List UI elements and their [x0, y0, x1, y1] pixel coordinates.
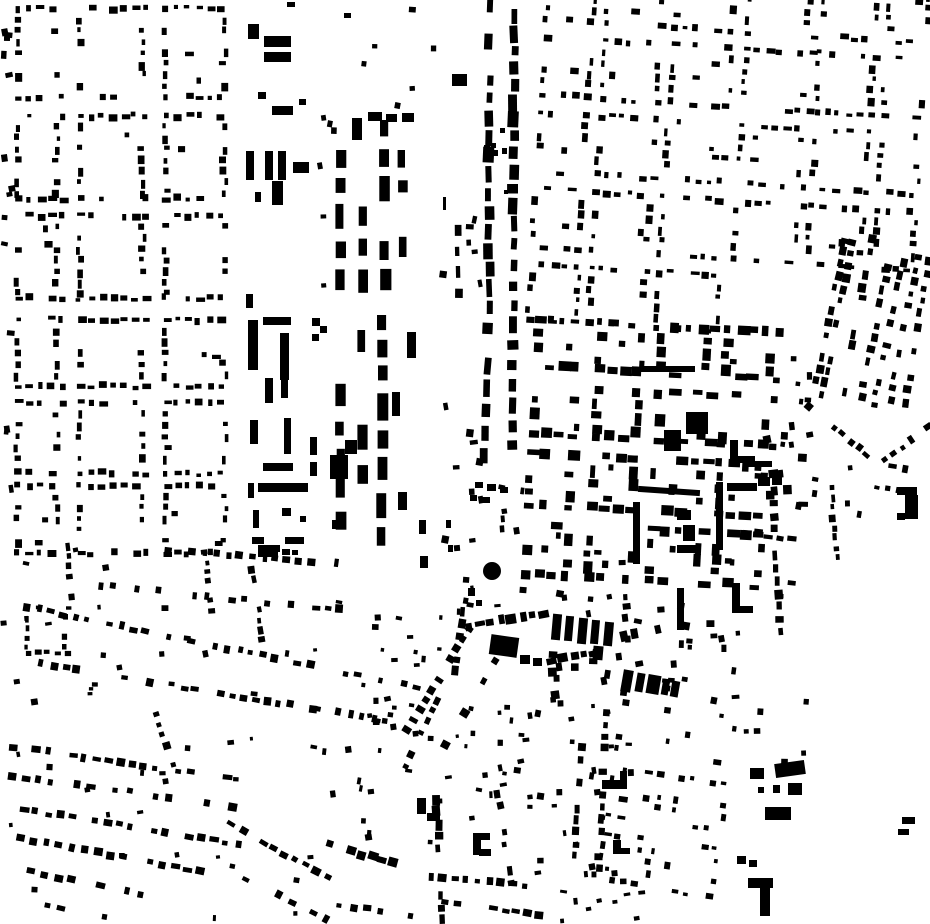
building — [715, 458, 722, 466]
building — [73, 780, 81, 789]
building — [619, 630, 629, 642]
south-center-dots — [455, 705, 532, 821]
building — [143, 234, 147, 242]
building — [710, 567, 719, 574]
east-fan-base — [881, 422, 930, 463]
building — [739, 123, 744, 127]
building — [667, 269, 674, 273]
building — [812, 376, 819, 384]
building — [15, 27, 21, 33]
building — [898, 829, 909, 835]
building — [185, 745, 191, 751]
building — [16, 752, 20, 758]
building — [696, 180, 702, 185]
building — [713, 759, 722, 766]
building — [361, 818, 366, 823]
building — [715, 198, 724, 205]
building — [137, 146, 144, 151]
building — [436, 820, 443, 831]
building — [529, 272, 536, 281]
building — [485, 166, 491, 183]
building — [909, 193, 914, 198]
building — [121, 483, 128, 488]
building — [428, 736, 434, 741]
building — [66, 606, 71, 609]
building — [398, 180, 408, 192]
building — [765, 353, 775, 364]
sw-street-row — [44, 902, 107, 920]
building — [594, 550, 602, 555]
building — [874, 217, 878, 225]
building — [313, 648, 317, 652]
building — [187, 768, 195, 774]
building — [498, 710, 502, 715]
building — [709, 147, 714, 151]
building — [645, 576, 654, 584]
building — [858, 295, 866, 301]
building — [589, 247, 594, 253]
building — [197, 6, 203, 9]
building — [16, 6, 20, 13]
building — [701, 272, 709, 280]
building — [722, 103, 730, 109]
building — [703, 459, 715, 465]
building — [657, 606, 665, 612]
building — [758, 544, 765, 553]
building — [858, 392, 867, 401]
building — [748, 326, 758, 333]
building — [538, 261, 544, 267]
building — [486, 279, 492, 297]
building — [170, 762, 176, 768]
market-cluster — [446, 482, 508, 606]
building — [588, 276, 595, 284]
building — [196, 482, 203, 489]
building — [208, 549, 213, 555]
building — [856, 511, 861, 519]
building — [60, 384, 66, 390]
building — [534, 342, 544, 352]
building — [528, 611, 535, 618]
building — [77, 83, 83, 90]
building — [16, 39, 19, 46]
building — [867, 129, 871, 133]
building — [380, 120, 388, 136]
building — [293, 162, 309, 173]
building — [882, 275, 891, 283]
building — [711, 846, 716, 850]
building — [348, 710, 354, 719]
building — [829, 244, 836, 248]
building — [745, 31, 751, 36]
building — [525, 475, 532, 483]
building — [586, 536, 593, 546]
building — [173, 194, 181, 201]
building — [830, 485, 835, 490]
building — [537, 858, 543, 864]
building — [217, 94, 222, 100]
building — [773, 785, 780, 793]
building — [310, 866, 322, 877]
building — [225, 178, 229, 185]
building — [591, 871, 596, 877]
building — [693, 42, 698, 47]
building — [724, 44, 733, 51]
building — [263, 554, 268, 562]
building — [775, 616, 783, 623]
building — [65, 543, 70, 552]
building — [507, 111, 519, 128]
building — [604, 9, 609, 14]
building — [186, 399, 191, 403]
building — [221, 83, 228, 92]
building — [19, 806, 29, 813]
building — [672, 807, 676, 812]
building — [378, 430, 389, 448]
building — [162, 223, 169, 228]
building — [880, 355, 886, 361]
building — [507, 184, 518, 194]
building — [446, 520, 451, 528]
building — [787, 580, 795, 586]
building — [592, 7, 597, 15]
building — [659, 526, 669, 537]
building — [803, 699, 809, 705]
building — [613, 848, 630, 854]
building — [590, 465, 596, 478]
building — [279, 850, 289, 859]
building — [47, 779, 53, 786]
building — [31, 745, 41, 753]
building — [568, 450, 581, 461]
building — [896, 349, 902, 357]
west-of-boulevard — [455, 225, 463, 298]
building — [133, 400, 138, 405]
building — [745, 200, 752, 207]
building — [250, 691, 257, 696]
building — [771, 396, 778, 403]
building — [225, 434, 229, 442]
building — [801, 203, 808, 209]
building — [59, 297, 65, 302]
building — [62, 634, 67, 640]
building — [111, 318, 119, 324]
building — [77, 384, 86, 389]
east-fan-base — [888, 463, 909, 473]
building — [421, 695, 430, 704]
building — [164, 258, 170, 264]
building — [895, 41, 902, 45]
building — [575, 805, 580, 814]
building — [327, 120, 333, 127]
building — [574, 309, 578, 316]
building — [55, 147, 60, 155]
building — [688, 645, 692, 650]
building — [635, 400, 643, 409]
building — [525, 306, 530, 313]
building — [81, 845, 89, 853]
building — [806, 431, 814, 438]
building — [715, 294, 720, 298]
building — [574, 288, 580, 294]
building — [398, 150, 405, 168]
building — [159, 731, 165, 737]
building — [814, 84, 820, 91]
building — [602, 780, 627, 789]
building — [361, 61, 367, 67]
building — [844, 262, 852, 270]
building — [477, 279, 482, 287]
building — [749, 585, 759, 590]
building — [609, 71, 616, 79]
building — [184, 5, 189, 8]
building — [650, 468, 656, 479]
building — [670, 680, 681, 697]
building — [511, 260, 518, 272]
building — [110, 95, 117, 100]
building — [78, 551, 86, 555]
building — [672, 41, 681, 46]
building — [657, 771, 665, 778]
building — [312, 334, 319, 341]
building — [469, 816, 475, 821]
building — [718, 635, 725, 643]
building — [592, 433, 600, 441]
building — [500, 782, 508, 787]
building — [600, 96, 606, 102]
building — [875, 298, 883, 308]
building — [184, 833, 194, 840]
building — [24, 616, 28, 621]
building — [100, 94, 106, 100]
building — [496, 801, 504, 809]
building — [455, 734, 459, 738]
building — [87, 552, 93, 557]
building — [15, 399, 24, 403]
building — [500, 525, 505, 532]
building — [622, 699, 630, 706]
building — [195, 318, 200, 325]
building — [563, 830, 567, 836]
building — [669, 372, 682, 378]
building — [45, 622, 52, 626]
building — [511, 216, 518, 232]
building — [330, 455, 348, 479]
building — [104, 757, 113, 764]
building — [834, 546, 840, 551]
building — [788, 783, 802, 795]
building — [913, 133, 918, 140]
building — [711, 273, 716, 277]
building — [842, 273, 851, 283]
building — [602, 560, 609, 568]
building — [184, 214, 191, 221]
building — [738, 134, 745, 141]
building — [655, 73, 660, 82]
building — [77, 423, 82, 432]
building — [721, 351, 729, 359]
building — [832, 533, 837, 540]
building — [653, 390, 662, 400]
building — [91, 817, 98, 823]
building — [156, 722, 162, 728]
building — [88, 212, 93, 218]
building — [27, 483, 33, 490]
building — [881, 113, 889, 118]
building — [664, 707, 671, 714]
building — [578, 200, 584, 209]
building — [241, 596, 247, 602]
building — [54, 72, 59, 78]
building — [602, 49, 606, 56]
building — [219, 157, 226, 164]
building — [815, 96, 819, 101]
building — [926, 0, 930, 2]
building — [15, 505, 21, 509]
building — [312, 606, 320, 611]
building — [566, 344, 573, 351]
building — [836, 554, 840, 560]
building — [439, 799, 443, 804]
building — [637, 847, 642, 853]
building — [336, 242, 346, 259]
building — [109, 7, 118, 14]
building — [817, 49, 822, 53]
building — [614, 38, 622, 45]
building — [164, 290, 170, 295]
building — [540, 245, 549, 250]
building — [531, 231, 536, 237]
building — [471, 249, 477, 254]
building — [129, 627, 138, 634]
building — [628, 190, 632, 194]
building — [419, 520, 426, 534]
building — [285, 537, 304, 544]
building — [812, 139, 817, 145]
building — [882, 342, 891, 349]
building — [586, 907, 592, 912]
building — [577, 223, 583, 231]
building — [141, 51, 145, 55]
building — [357, 777, 362, 784]
building — [60, 198, 69, 204]
building — [122, 214, 126, 221]
building — [407, 635, 413, 639]
building — [88, 692, 93, 695]
building — [871, 402, 878, 408]
building — [195, 384, 202, 389]
building — [912, 115, 921, 119]
building — [621, 98, 626, 104]
building — [438, 891, 442, 899]
building — [623, 594, 628, 600]
building — [578, 756, 584, 763]
sw-street-row — [9, 744, 233, 780]
west-edge-dots — [1, 28, 16, 493]
building — [594, 170, 601, 176]
building — [98, 468, 107, 474]
building — [581, 122, 588, 129]
building — [143, 549, 148, 556]
building — [609, 744, 614, 748]
building — [109, 114, 118, 121]
building — [103, 819, 113, 827]
building — [77, 236, 81, 241]
building — [52, 279, 58, 287]
building — [137, 810, 144, 814]
building — [630, 880, 638, 887]
sw-street-row — [98, 582, 343, 613]
building — [484, 153, 490, 158]
building — [53, 340, 59, 347]
building — [407, 332, 416, 358]
building — [534, 870, 541, 875]
building — [106, 812, 110, 818]
building — [164, 361, 168, 366]
building — [1, 241, 8, 246]
building — [259, 651, 267, 658]
building — [377, 393, 388, 420]
building — [661, 214, 665, 220]
building — [480, 448, 488, 463]
building — [591, 411, 602, 419]
building — [259, 839, 269, 848]
building — [480, 677, 488, 685]
building — [754, 258, 760, 263]
building — [762, 435, 771, 444]
building — [564, 505, 572, 511]
building — [594, 357, 601, 364]
building — [908, 291, 913, 297]
building — [0, 620, 6, 626]
building — [886, 3, 890, 12]
building — [517, 758, 524, 764]
building — [603, 190, 611, 197]
building — [164, 318, 172, 322]
building — [264, 600, 270, 607]
building — [656, 270, 663, 277]
building — [670, 322, 679, 333]
building — [911, 253, 915, 262]
building — [665, 140, 671, 145]
east-street — [829, 485, 840, 560]
building — [176, 483, 183, 489]
building — [925, 17, 930, 24]
building — [247, 566, 255, 575]
building — [358, 465, 369, 484]
building — [902, 817, 915, 824]
building — [98, 113, 104, 118]
building — [471, 731, 476, 737]
building — [272, 106, 293, 115]
building — [439, 615, 443, 620]
building — [662, 150, 669, 159]
building — [562, 223, 569, 229]
building — [509, 61, 518, 74]
building — [598, 266, 603, 271]
building — [335, 384, 345, 406]
building — [681, 676, 688, 682]
row-housing — [357, 330, 368, 484]
building — [153, 711, 160, 717]
building — [919, 100, 926, 109]
building — [905, 495, 918, 519]
building — [168, 681, 174, 686]
building — [88, 318, 95, 323]
building — [138, 246, 145, 252]
building — [84, 787, 90, 793]
building — [162, 538, 169, 542]
